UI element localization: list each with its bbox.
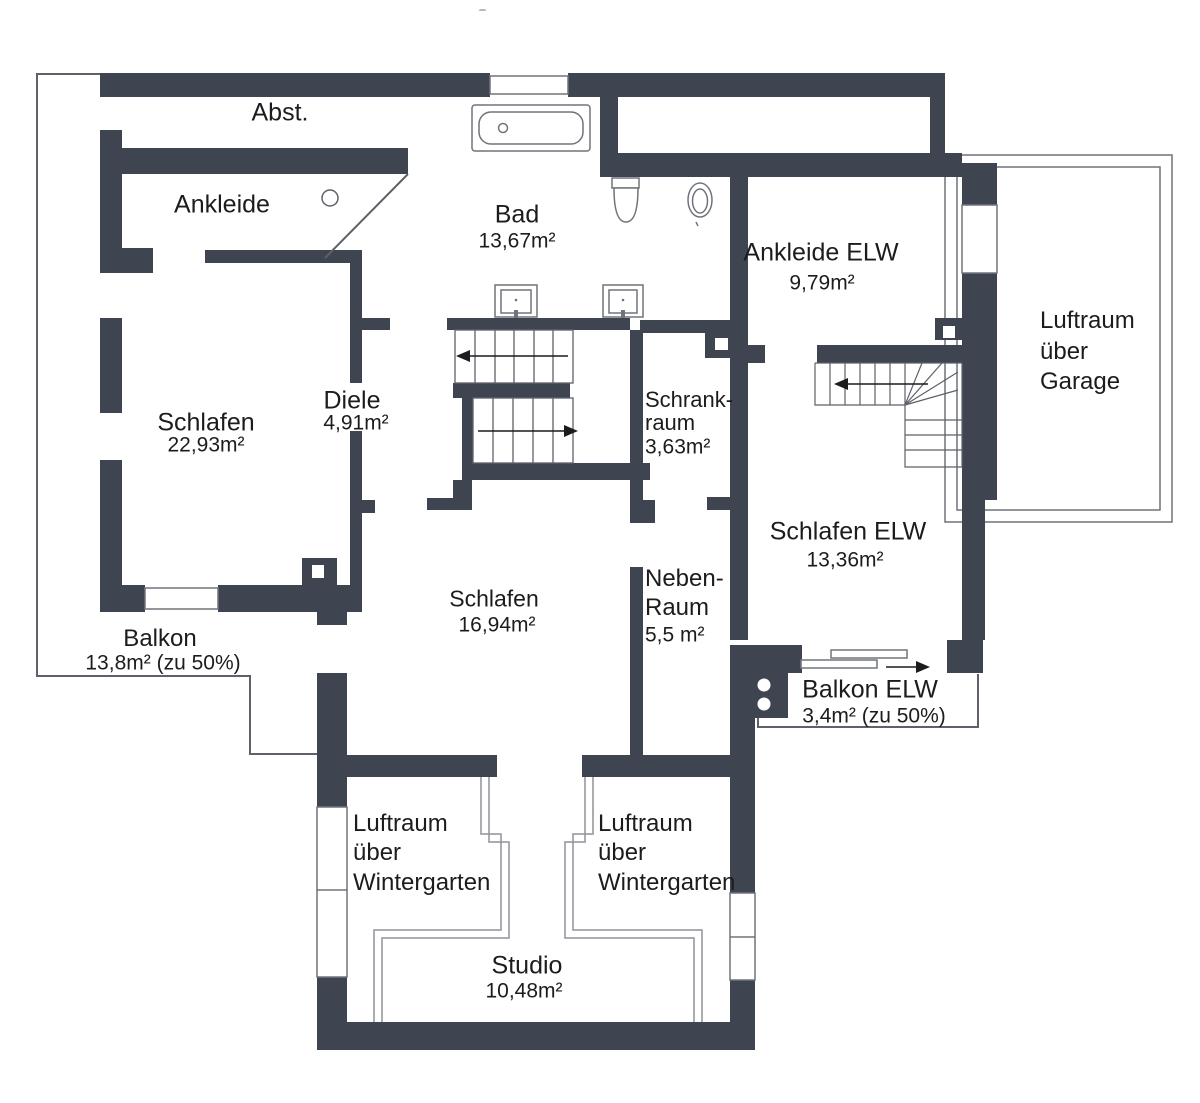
door-elements	[322, 174, 408, 258]
room-label-studio: Studio	[492, 953, 563, 978]
print-artifact	[479, 9, 486, 14]
room-area-schlafen-elw: 13,36m²	[806, 549, 883, 570]
room-label-diele: Diele	[324, 388, 381, 413]
floor-plan: Abst. Ankleide Bad 13,67m² Ankleide ELW …	[0, 0, 1200, 1103]
room-label-luftraum-wg-links-3: Wintergarten	[353, 871, 490, 895]
room-label-luftraum-garage-2: über	[1040, 340, 1088, 364]
room-label-schrankraum-1: Schrank-	[645, 389, 733, 411]
room-label-balkon-elw: Balkon ELW	[802, 677, 938, 702]
toilet-icon	[612, 178, 639, 222]
room-label-abst: Abst.	[252, 100, 309, 125]
room-label-schrankraum-2: raum	[645, 412, 695, 434]
room-label-ankleide-elw: Ankleide ELW	[743, 240, 898, 265]
room-label-luftraum-garage-1: Luftraum	[1040, 309, 1135, 333]
room-label-luftraum-wg-rechts-1: Luftraum	[598, 812, 693, 836]
room-label-luftraum-wg-links-2: über	[353, 841, 401, 865]
room-area-schlafen-mitte: 16,94m²	[458, 614, 535, 635]
room-area-bad: 13,67m²	[478, 230, 555, 251]
room-label-luftraum-wg-rechts-3: Wintergarten	[598, 871, 735, 895]
room-label-ankleide: Ankleide	[174, 192, 270, 217]
room-label-schlafen: Schlafen	[157, 410, 254, 435]
sliding-door-icon	[801, 650, 930, 673]
room-area-balkon-elw: 3,4m² (zu 50%)	[802, 705, 946, 726]
bidet-icon	[688, 183, 712, 226]
door-swing-icon	[325, 174, 408, 258]
room-label-neben-raum-1: Neben-	[645, 567, 724, 591]
washbasin-icon	[603, 285, 643, 318]
door-knob-icon	[322, 190, 338, 206]
elw-winder-staircase-icon	[815, 363, 962, 467]
room-area-balkon: 13,8m² (zu 50%)	[85, 652, 240, 673]
room-area-neben-raum: 5,5 m²	[645, 624, 705, 645]
room-label-neben-raum-2: Raum	[645, 596, 709, 620]
room-label-luftraum-wg-links-1: Luftraum	[353, 812, 448, 836]
room-label-balkon: Balkon	[123, 627, 196, 651]
stair-direction-arrow-elw	[834, 378, 928, 390]
room-label-schlafen-mitte: Schlafen	[449, 587, 539, 610]
room-area-schlafen: 22,93m²	[167, 434, 244, 455]
room-area-studio: 10,48m²	[485, 980, 562, 1001]
room-label-bad: Bad	[495, 202, 539, 227]
room-label-luftraum-garage-3: Garage	[1040, 370, 1120, 394]
washbasin-icon	[495, 285, 537, 318]
bathtub-icon	[472, 105, 590, 151]
room-area-diele: 4,91m²	[323, 412, 388, 433]
room-area-ankleide-elw: 9,79m²	[789, 272, 854, 293]
room-area-schrankraum: 3,63m²	[645, 436, 710, 457]
room-label-luftraum-wg-rechts-2: über	[598, 841, 646, 865]
room-label-schlafen-elw: Schlafen ELW	[770, 519, 927, 544]
floor-plan-drawing	[0, 0, 1200, 1103]
